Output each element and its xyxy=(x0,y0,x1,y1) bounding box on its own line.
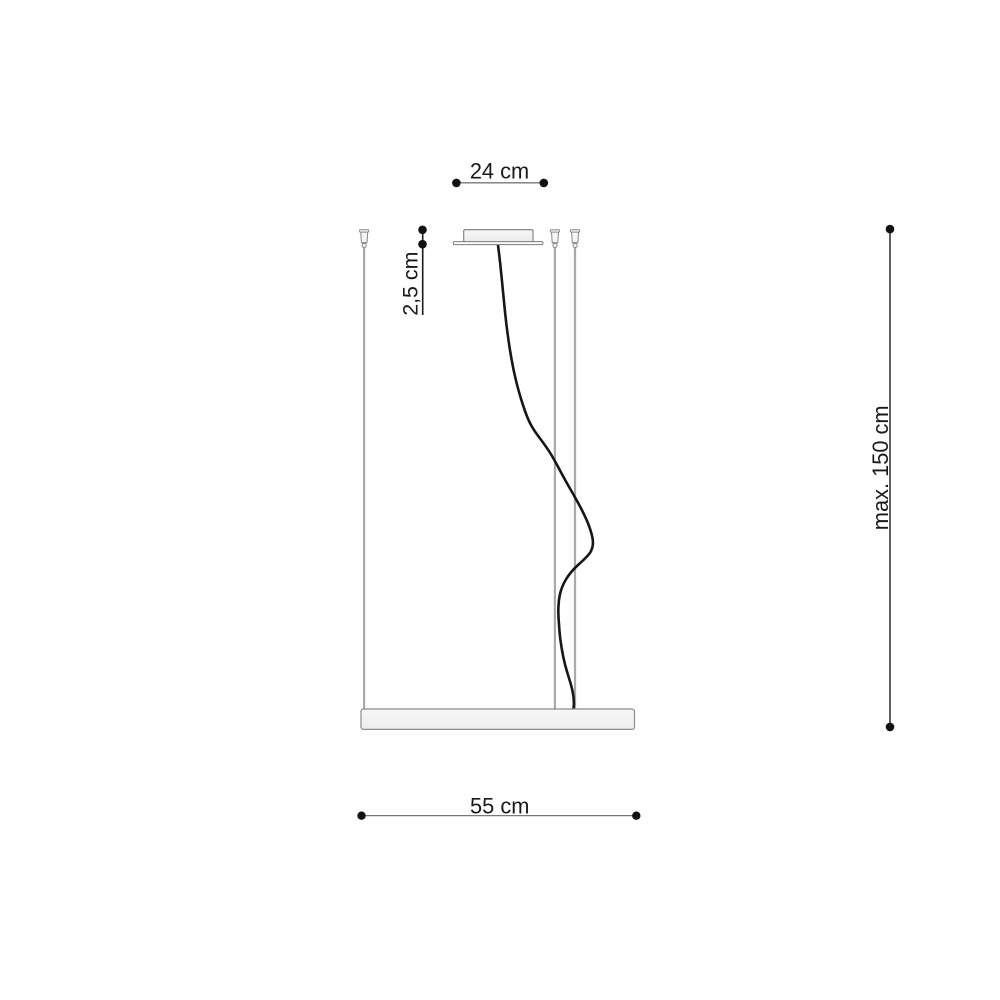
svg-text:24 cm: 24 cm xyxy=(470,159,529,184)
svg-text:55 cm: 55 cm xyxy=(470,794,529,819)
svg-text:max. 150 cm: max. 150 cm xyxy=(868,405,893,530)
svg-text:2,5 cm: 2,5 cm xyxy=(398,252,422,316)
